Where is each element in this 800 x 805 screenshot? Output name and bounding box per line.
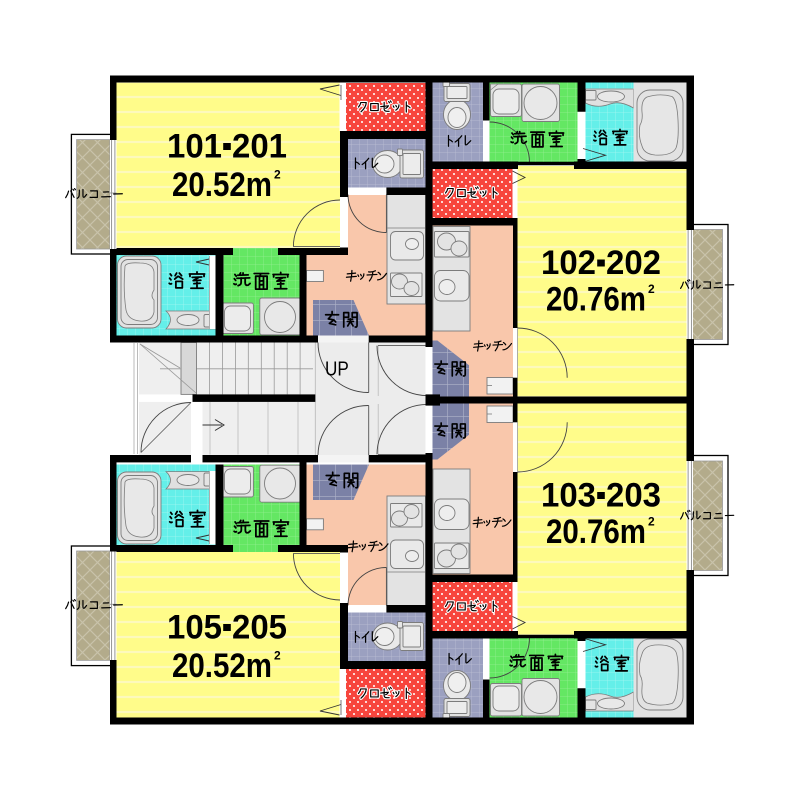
svg-text:2: 2 [274, 168, 281, 182]
svg-text:202: 202 [606, 244, 661, 282]
svg-text:101: 101 [167, 128, 222, 166]
svg-text:2: 2 [648, 282, 655, 296]
svg-text:20.52m: 20.52m [172, 647, 272, 685]
svg-text:UP: UP [325, 358, 349, 381]
svg-text:2: 2 [274, 649, 281, 663]
svg-text:102: 102 [541, 244, 596, 282]
svg-text:20.76m: 20.76m [546, 513, 646, 551]
svg-text:2: 2 [648, 515, 655, 529]
svg-text:201: 201 [232, 128, 287, 166]
svg-text:20.52m: 20.52m [172, 166, 272, 204]
svg-text:103: 103 [541, 477, 596, 515]
svg-text:20.76m: 20.76m [546, 281, 646, 319]
svg-text:105: 105 [167, 609, 222, 647]
svg-text:205: 205 [232, 609, 287, 647]
svg-text:203: 203 [606, 477, 661, 515]
